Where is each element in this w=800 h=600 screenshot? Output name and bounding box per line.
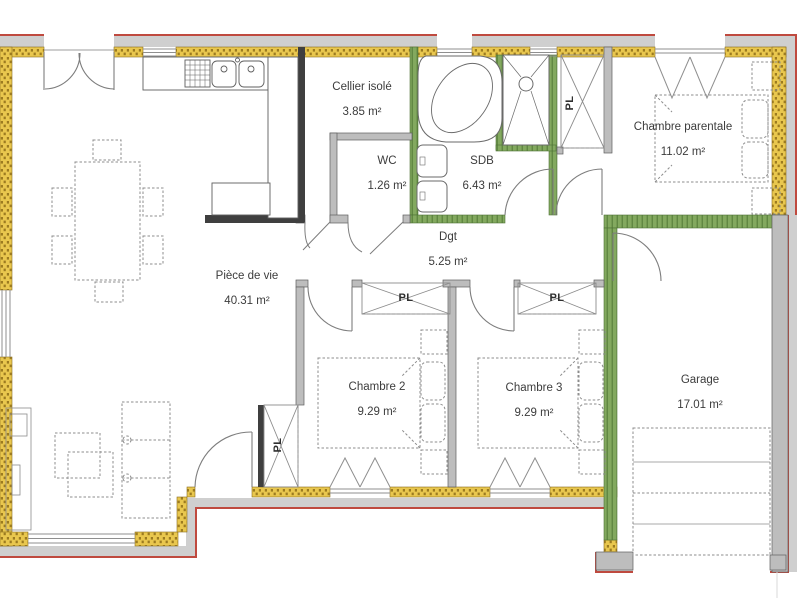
- kitchen: [143, 57, 298, 218]
- room-label-piece-de-vie: Pièce de vie 40.31 m²: [216, 271, 279, 307]
- room-name: Garage: [677, 375, 722, 387]
- vanity-double-sink: [417, 145, 447, 212]
- room-label-dgt: Dgt 5.25 m²: [429, 232, 468, 268]
- room-area: 1.26 m²: [368, 181, 407, 193]
- room-area: 5.25 m²: [429, 257, 468, 269]
- room-label-chambre3: Chambre 3 9.29 m²: [506, 383, 563, 419]
- room-area: 3.85 m²: [332, 107, 391, 119]
- closet-label-chambre2: PL: [398, 292, 413, 304]
- closet-label-chambre3: PL: [549, 292, 564, 304]
- bathtub: [418, 56, 502, 142]
- room-label-sdb: SDB 6.43 m²: [463, 156, 502, 192]
- room-area: 17.01 m²: [677, 400, 722, 412]
- room-area: 9.29 m²: [506, 408, 563, 420]
- closet-label-top: PL: [564, 95, 576, 110]
- room-label-garage: Garage 17.01 m²: [677, 375, 722, 411]
- garage-door: [633, 428, 770, 555]
- room-name: Cellier isolé: [332, 82, 391, 94]
- room-name: Chambre parentale: [634, 122, 732, 134]
- room-name: Dgt: [429, 232, 468, 244]
- floor-plan: Cellier isolé 3.85 m² WC 1.26 m² SDB 6.4…: [0, 0, 800, 600]
- dining-table: [52, 140, 163, 302]
- room-name: WC: [368, 156, 407, 168]
- kitchen-counter-bottom: [212, 183, 270, 215]
- kitchen-drainer: [185, 60, 210, 87]
- coffee-tables: [55, 433, 113, 497]
- room-label-cellier: Cellier isolé 3.85 m²: [332, 82, 391, 118]
- room-label-wc: WC 1.26 m²: [368, 156, 407, 192]
- room-name: SDB: [463, 156, 502, 168]
- shower: [503, 55, 549, 145]
- room-name: Pièce de vie: [216, 271, 279, 283]
- room-area: 9.29 m²: [349, 407, 406, 419]
- room-label-parentale: Chambre parentale 11.02 m²: [634, 122, 732, 158]
- room-area: 40.31 m²: [216, 296, 279, 308]
- room-name: Chambre 3: [506, 383, 563, 395]
- kitchen-counter-right: [268, 57, 298, 218]
- room-area: 11.02 m²: [634, 147, 732, 159]
- sofa: [122, 402, 170, 518]
- room-name: Chambre 2: [349, 382, 406, 394]
- room-area: 6.43 m²: [463, 181, 502, 193]
- closet-label-entry: PL: [272, 437, 284, 452]
- room-label-chambre2: Chambre 2 9.29 m²: [349, 382, 406, 418]
